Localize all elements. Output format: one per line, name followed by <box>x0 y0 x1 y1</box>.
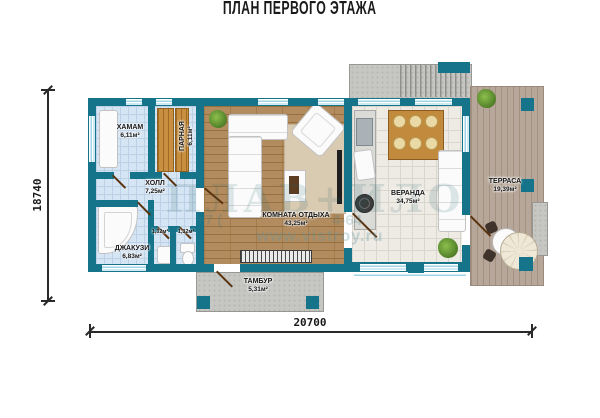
wall-segment <box>196 212 204 264</box>
terrace-post <box>519 257 533 271</box>
room-name: ТЕРРАСА <box>472 178 538 186</box>
room-label-veranda: ВЕРАНДА 34,75м² <box>377 190 439 206</box>
window <box>258 99 288 105</box>
plant-icon <box>209 110 227 128</box>
room-area: 5,31м² <box>213 286 303 293</box>
window <box>318 99 344 105</box>
room-label-wc-left: 1,32м² <box>146 229 174 235</box>
counter-board <box>353 149 376 181</box>
window <box>126 99 142 105</box>
armchair-seat <box>300 112 337 149</box>
stool <box>393 137 406 150</box>
page-title: ПЛАН ПЕРВОГО ЭТАЖА <box>0 0 600 17</box>
room-area: 43,25м² <box>250 220 342 227</box>
window <box>102 265 146 271</box>
grill-ring <box>359 198 370 209</box>
window <box>463 116 469 152</box>
tambour-post <box>197 296 210 309</box>
dimension-width-label: 20700 <box>260 316 360 329</box>
dimension-line-horizontal <box>90 331 532 333</box>
dimension-line-vertical <box>47 90 49 302</box>
coffee-table <box>284 170 306 202</box>
room-label-hall: ХОЛЛ 7,25м² <box>125 180 185 196</box>
plant-icon <box>438 238 458 258</box>
room-name: ДЖАКУЗИ <box>100 245 164 253</box>
room-area: 6,11м² <box>100 132 160 139</box>
terrace-post <box>521 98 534 111</box>
room-area: 6,11м² <box>187 106 194 166</box>
sofa-corner-side <box>228 136 262 218</box>
room-name: ПАРНАЯ <box>179 106 187 166</box>
room-area: 19,39м² <box>472 186 538 193</box>
room-label-jacuzzi: ДЖАКУЗИ 6,83м² <box>100 245 164 261</box>
page-title-text: ПЛАН ПЕРВОГО ЭТАЖА <box>223 0 377 19</box>
room-name: ВЕРАНДА <box>377 190 439 198</box>
radiator <box>240 250 312 263</box>
wall-segment <box>130 172 162 179</box>
sauna-bench <box>157 108 174 172</box>
window <box>424 264 458 271</box>
window <box>360 264 406 271</box>
window <box>415 99 452 105</box>
room-label-hamam: ХАМАМ 6,11м² <box>100 124 160 140</box>
stool <box>425 115 438 128</box>
window <box>89 116 95 162</box>
stool <box>425 137 438 150</box>
room-label-tambour: ТАМБУР 5,31м² <box>213 278 303 294</box>
wall-segment <box>96 200 138 207</box>
wall-segment <box>438 62 470 73</box>
stool <box>393 115 406 128</box>
room-area: 34,75м² <box>377 198 439 205</box>
room-label-wc-right: 1,32м² <box>172 229 200 235</box>
wall-segment <box>240 264 348 272</box>
grill <box>355 194 374 213</box>
coffee-table-top <box>289 176 299 194</box>
sink <box>356 118 373 146</box>
tambour-post <box>306 296 319 309</box>
window <box>358 99 400 105</box>
window <box>156 99 172 105</box>
plant-icon <box>477 89 496 108</box>
wall-segment <box>196 106 204 188</box>
room-label-terrace: ТЕРРАСА 19,39м² <box>472 178 538 194</box>
room-name: ТАМБУР <box>213 278 303 286</box>
stool <box>409 115 422 128</box>
stool <box>409 137 422 150</box>
tv-unit <box>337 150 342 204</box>
room-name: ХОЛЛ <box>125 180 185 188</box>
room-area: 7,25м² <box>125 188 185 195</box>
floor-plan-canvas: ПЛАН ПЕРВОГО ЭТАЖА 18740 20700 <box>0 0 600 418</box>
room-area: 6,83м² <box>100 253 164 260</box>
wall-segment <box>344 106 352 212</box>
room-label-lounge: КОМНАТА ОТДЫХА 43,25м² <box>250 212 342 228</box>
window-sill <box>354 273 466 277</box>
room-name: ХАМАМ <box>100 124 160 132</box>
room-name: КОМНАТА ОТДЫХА <box>250 212 342 220</box>
room-label-parnaya: ПАРНАЯ 6,11м² <box>179 106 195 166</box>
dimension-height-label: 18740 <box>31 170 45 220</box>
